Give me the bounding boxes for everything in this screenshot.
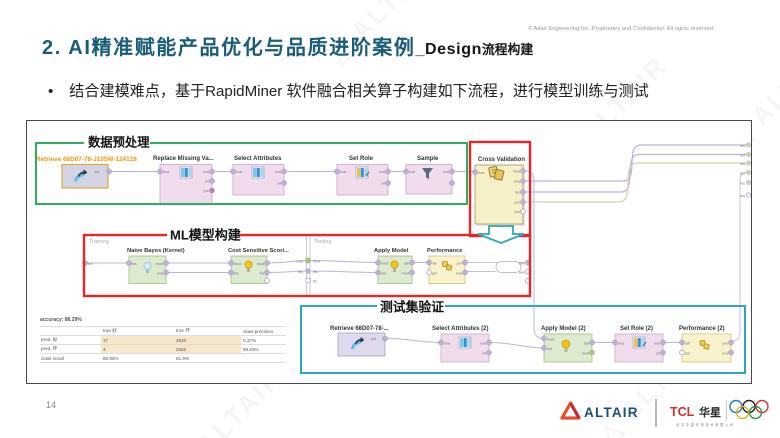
svg-text:thr: thr: [313, 280, 318, 284]
svg-text:mod: mod: [547, 338, 554, 342]
svg-text:lab: lab: [432, 262, 437, 266]
svg-text:res: res: [740, 154, 745, 158]
svg-text:ave: ave: [519, 262, 525, 266]
svg-text:exa: exa: [236, 170, 243, 174]
svg-text:exa: exa: [478, 171, 485, 175]
svg-text:res: res: [740, 144, 745, 148]
svg-text:mod: mod: [513, 170, 520, 174]
svg-text:mod: mod: [234, 262, 241, 266]
svg-text:Replace Missing Va...: Replace Missing Va...: [153, 156, 214, 162]
svg-text:exa: exa: [409, 170, 416, 174]
svg-text:ori: ori: [482, 352, 486, 356]
svg-text:tes: tes: [313, 270, 318, 274]
svg-text:Naive Bayes (Kernel): Naive Bayes (Kernel): [127, 248, 185, 254]
svg-text:ori: ori: [205, 180, 209, 184]
svg-text:res: res: [740, 162, 745, 166]
svg-text:exa: exa: [163, 170, 170, 174]
svg-text:lab: lab: [685, 342, 690, 346]
svg-text:ave: ave: [519, 271, 525, 275]
svg-text:Testing: Testing: [314, 239, 331, 245]
svg-text:Apply Model (2): Apply Model (2): [541, 326, 586, 332]
svg-text:per: per: [685, 352, 691, 356]
svg-text:per: per: [515, 201, 521, 205]
svg-text:Retrieve 68D07-78-J105W-124128: Retrieve 68D07-78-J105W-124128: [36, 156, 137, 163]
svg-text:unl: unl: [547, 347, 552, 351]
svg-text:ori: ori: [656, 352, 660, 356]
svg-text:Performance (2): Performance (2): [679, 326, 725, 332]
svg-text:Performance: Performance: [427, 248, 463, 254]
svg-text:exa: exa: [340, 170, 347, 174]
svg-text:per: per: [515, 210, 521, 214]
svg-text:per: per: [723, 342, 729, 346]
svg-text:TCL: TCL: [670, 405, 695, 419]
svg-text:res: res: [740, 172, 745, 176]
svg-text:mod: mod: [257, 262, 264, 266]
svg-text:Select Attributes (2): Select Attributes (2): [432, 326, 488, 332]
svg-text:Retrieve 68D07-78-...: Retrieve 68D07-78-...: [330, 326, 389, 332]
svg-text:武汉华星光电技术有限公司: 武汉华星光电技术有限公司: [676, 422, 735, 427]
svg-text:res: res: [740, 182, 745, 186]
svg-text:exa: exa: [444, 342, 451, 346]
svg-text:mod: mod: [296, 260, 303, 264]
svg-text:exa: exa: [443, 170, 450, 174]
svg-text:Cost Sensitive Scori...: Cost Sensitive Scori...: [228, 248, 289, 254]
svg-text:Training: Training: [89, 239, 109, 245]
svg-text:exa: exa: [379, 170, 386, 174]
svg-text:per: per: [457, 262, 463, 266]
svg-text:华星: 华星: [699, 405, 721, 419]
svg-text:数据预处理: 数据预处理: [88, 135, 150, 150]
svg-text:mod: mod: [156, 262, 163, 266]
svg-text:unl: unl: [381, 272, 386, 276]
svg-text:exa: exa: [722, 352, 729, 356]
svg-text:Sample: Sample: [417, 156, 439, 162]
svg-text:res: res: [740, 194, 745, 198]
svg-text:Apply Model: Apply Model: [374, 248, 409, 254]
svg-text:Cross Validation: Cross Validation: [478, 157, 525, 163]
svg-text:Set Role (2): Set Role (2): [620, 326, 653, 332]
svg-text:mod: mod: [582, 352, 589, 356]
svg-text:ALTAIR: ALTAIR: [584, 405, 639, 420]
svg-text:ML模型构建: ML模型构建: [170, 228, 241, 243]
svg-text:lab: lab: [404, 262, 409, 266]
svg-text:exa: exa: [654, 342, 661, 346]
svg-text:exa: exa: [275, 170, 282, 174]
svg-text:ori: ori: [381, 182, 385, 186]
svg-text:mod: mod: [381, 262, 388, 266]
svg-text:lab: lab: [584, 342, 589, 346]
svg-text:mod: mod: [313, 260, 320, 264]
svg-text:exa: exa: [514, 180, 521, 184]
svg-text:Select Attributes: Select Attributes: [234, 156, 282, 162]
svg-text:Set Role: Set Role: [349, 156, 374, 162]
svg-text:exa: exa: [480, 342, 487, 346]
svg-text:pre: pre: [204, 189, 210, 193]
svg-text:tes: tes: [515, 191, 520, 195]
svg-text:ori: ori: [277, 182, 281, 186]
svg-text:exa: exa: [456, 272, 463, 276]
svg-text:exa: exa: [157, 272, 164, 276]
svg-text:mod: mod: [402, 272, 409, 276]
svg-text:测试集验证: 测试集验证: [380, 300, 444, 315]
svg-text:exa: exa: [618, 342, 625, 346]
svg-text:tes: tes: [298, 270, 303, 274]
svg-text:exa: exa: [203, 170, 210, 174]
svg-text:per: per: [432, 272, 438, 276]
